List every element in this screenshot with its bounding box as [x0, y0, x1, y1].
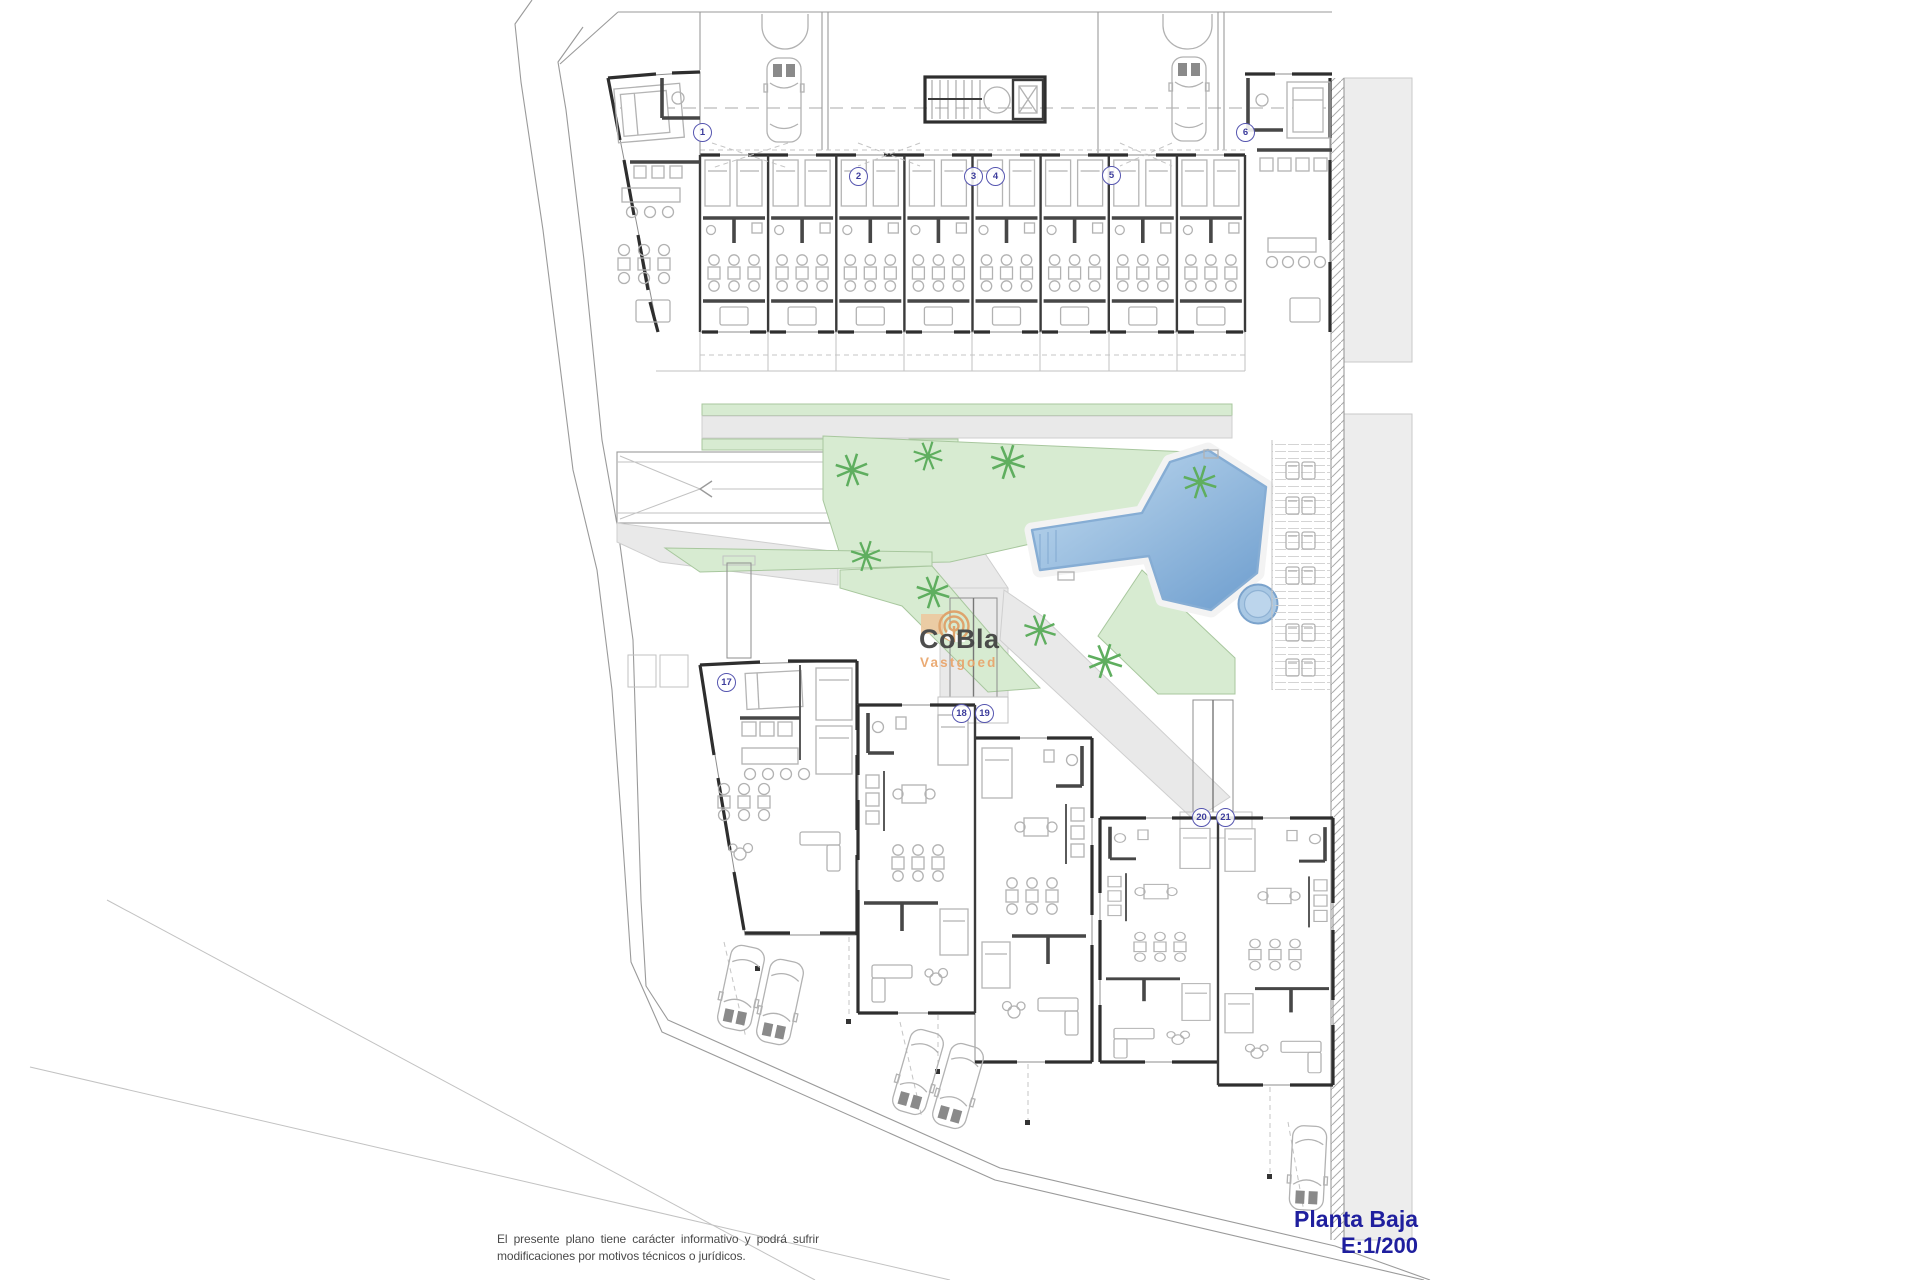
walkway — [702, 416, 1232, 438]
car-icon — [752, 957, 809, 1047]
floor-plan-page: 1 2 3 4 5 6 17 18 19 20 21 CoBla Vastgoe… — [0, 0, 1920, 1280]
building-units-20-21 — [1100, 818, 1333, 1085]
car-icon — [927, 1040, 989, 1132]
bottom-parking-area — [713, 937, 1330, 1212]
unit6-annex — [1245, 74, 1332, 332]
car-icon — [764, 58, 804, 142]
green-strip — [702, 404, 1232, 416]
site-plan-drawing — [0, 0, 1920, 1280]
top-stairwell — [925, 77, 1045, 122]
staircase-icon — [727, 563, 751, 658]
building-unit-17 — [700, 661, 857, 935]
building-units-18-19 — [858, 705, 1092, 1062]
neighbor-structures — [1331, 78, 1412, 1240]
top-building-row — [656, 143, 1245, 371]
car-icon — [713, 943, 770, 1033]
car-icon — [1169, 57, 1209, 141]
ramp-arrow-icon — [700, 481, 712, 497]
garage-door-icon — [762, 14, 808, 49]
garage-door-icon — [1163, 14, 1212, 49]
sun-deck — [1272, 440, 1330, 690]
street-lines — [30, 900, 950, 1280]
unit1-annex — [608, 72, 700, 332]
car-icon — [1286, 1125, 1330, 1211]
